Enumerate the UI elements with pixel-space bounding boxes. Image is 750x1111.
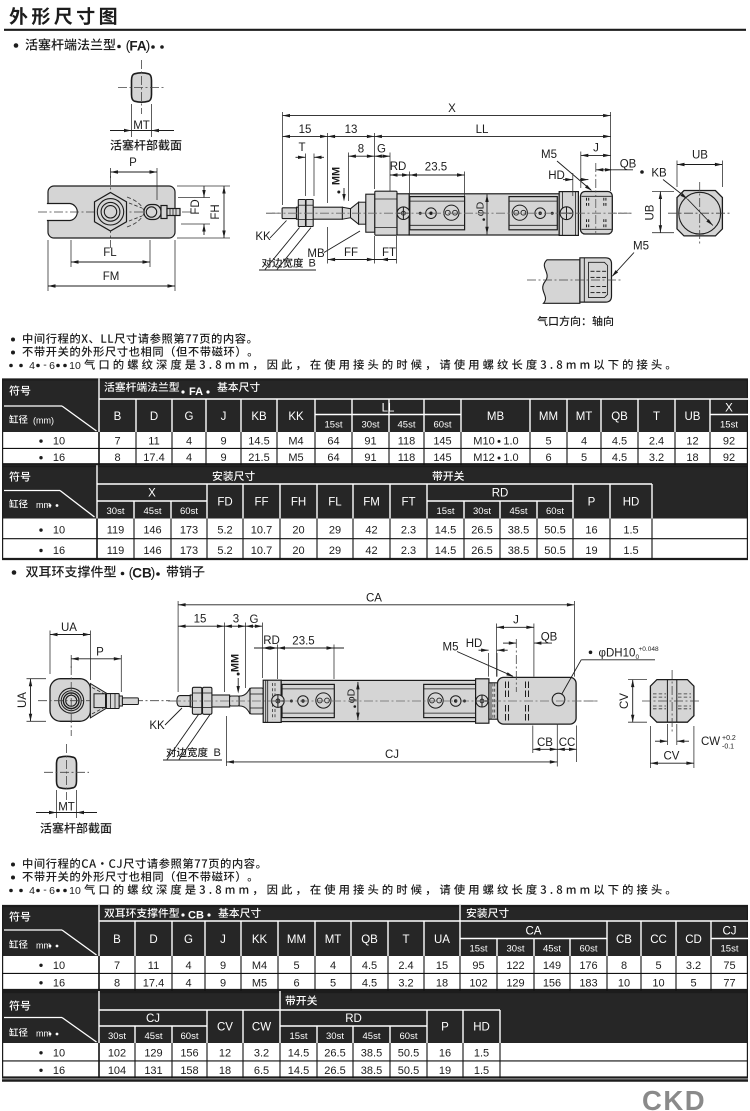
svg-text:CC: CC	[559, 737, 576, 749]
svg-text:10: 10	[69, 360, 81, 372]
svg-text:15st: 15st	[720, 420, 738, 431]
svg-text:64: 64	[327, 452, 339, 464]
svg-text:26.5: 26.5	[324, 1047, 345, 1059]
svg-text:FF: FF	[254, 497, 268, 509]
svg-text:KK: KK	[288, 411, 304, 423]
svg-text:RD: RD	[390, 161, 407, 173]
svg-text:T: T	[653, 411, 660, 423]
svg-text:60st: 60st	[580, 944, 598, 955]
svg-text:MM: MM	[331, 167, 343, 185]
svg-text:5: 5	[655, 960, 661, 972]
svg-text:176: 176	[579, 960, 597, 972]
svg-text:92: 92	[723, 436, 735, 448]
svg-text:11: 11	[148, 436, 159, 448]
svg-text:5: 5	[293, 960, 299, 972]
svg-text:145: 145	[433, 436, 451, 448]
svg-text:4: 4	[581, 436, 587, 448]
svg-text:UB: UB	[692, 150, 708, 162]
svg-text:3: 3	[233, 614, 239, 626]
svg-text:(mm): (mm)	[33, 416, 54, 426]
svg-text:64: 64	[327, 436, 339, 448]
svg-text:119: 119	[107, 525, 125, 537]
svg-text:6: 6	[293, 977, 299, 989]
svg-text:HD: HD	[623, 497, 640, 509]
svg-text:B: B	[113, 934, 121, 946]
svg-text:19: 19	[439, 1065, 451, 1077]
svg-text:30st: 30st	[507, 944, 525, 955]
svg-text:77: 77	[723, 977, 735, 989]
svg-text:D: D	[149, 934, 157, 946]
svg-text:4: 4	[186, 436, 192, 448]
svg-text:2.4: 2.4	[398, 960, 413, 972]
svg-text:91: 91	[364, 436, 376, 448]
svg-text:φD: φD	[475, 201, 487, 216]
svg-text:50.5: 50.5	[544, 525, 565, 537]
svg-text:-: -	[43, 359, 47, 371]
svg-text:30st: 30st	[107, 506, 125, 517]
svg-text:M4: M4	[252, 960, 267, 972]
svg-text:M5: M5	[288, 452, 303, 464]
svg-text:3.2: 3.2	[649, 452, 664, 464]
svg-text:2.3: 2.3	[401, 545, 416, 557]
svg-text:J: J	[513, 615, 519, 627]
svg-text:45st: 45st	[144, 506, 162, 517]
svg-text:1.5: 1.5	[474, 1065, 489, 1077]
svg-text:38.5: 38.5	[361, 1047, 382, 1059]
svg-text:60st: 60st	[181, 1031, 199, 1042]
svg-text:UA: UA	[61, 622, 77, 634]
svg-text:45st: 45st	[398, 420, 416, 431]
svg-text:15st: 15st	[437, 506, 455, 517]
svg-text:16: 16	[53, 452, 65, 464]
svg-text:15: 15	[299, 124, 312, 136]
svg-text:30st: 30st	[362, 420, 380, 431]
svg-text:FH: FH	[210, 204, 222, 219]
svg-text:QB: QB	[361, 934, 378, 946]
svg-text:26.5: 26.5	[471, 545, 492, 557]
svg-text:16: 16	[53, 977, 65, 989]
svg-text:15: 15	[436, 960, 448, 972]
svg-text:18: 18	[436, 977, 448, 989]
svg-text:CB: CB	[132, 566, 152, 581]
svg-text:QB: QB	[541, 632, 558, 644]
svg-text:P: P	[588, 497, 596, 509]
svg-text:15st: 15st	[721, 944, 739, 955]
svg-text:131: 131	[144, 1065, 162, 1077]
svg-text:16: 16	[585, 525, 597, 537]
svg-text:G: G	[184, 934, 193, 946]
svg-text:M5: M5	[633, 241, 649, 253]
svg-text:102: 102	[469, 977, 487, 989]
svg-text:FF: FF	[344, 247, 358, 259]
svg-text:15st: 15st	[290, 1031, 308, 1042]
svg-text:CB: CB	[188, 909, 204, 921]
svg-text:18: 18	[686, 452, 698, 464]
svg-text:4: 4	[185, 960, 191, 972]
svg-text:5.2: 5.2	[217, 545, 232, 557]
svg-text:CKD: CKD	[642, 1085, 706, 1111]
svg-text:G: G	[377, 144, 386, 156]
svg-text:CB: CB	[616, 934, 632, 946]
svg-text:4: 4	[330, 960, 336, 972]
svg-text:CA: CA	[526, 926, 542, 938]
svg-text:50.5: 50.5	[398, 1047, 419, 1059]
svg-text:CA: CA	[366, 593, 382, 605]
svg-text:7: 7	[114, 960, 120, 972]
svg-text:26.5: 26.5	[471, 525, 492, 537]
svg-text:3.2: 3.2	[686, 960, 701, 972]
svg-text:FM: FM	[103, 271, 120, 283]
svg-text:8: 8	[114, 977, 120, 989]
svg-text:B: B	[114, 411, 122, 423]
svg-text:17.4: 17.4	[143, 977, 164, 989]
svg-text:20: 20	[292, 525, 304, 537]
svg-text:23.5: 23.5	[425, 162, 447, 174]
svg-text:1.5: 1.5	[623, 525, 638, 537]
svg-text:HD: HD	[473, 1022, 490, 1034]
svg-text:30st: 30st	[326, 1031, 344, 1042]
svg-text:M5: M5	[443, 642, 459, 654]
svg-text:D: D	[150, 411, 158, 423]
svg-text:KK: KK	[252, 934, 268, 946]
svg-text:10: 10	[53, 525, 65, 537]
svg-text:173: 173	[180, 545, 198, 557]
svg-text:P: P	[441, 1022, 449, 1034]
svg-text:4.5: 4.5	[362, 977, 377, 989]
svg-text:B: B	[309, 258, 316, 270]
svg-text:4.5: 4.5	[612, 436, 627, 448]
svg-text:P: P	[96, 647, 104, 659]
svg-text:G: G	[185, 411, 194, 423]
svg-text:4: 4	[185, 977, 191, 989]
svg-text:45st: 45st	[510, 506, 528, 517]
svg-text:173: 173	[180, 525, 198, 537]
svg-text:4.5: 4.5	[362, 960, 377, 972]
svg-text:122: 122	[506, 960, 524, 972]
svg-text:M10: M10	[473, 436, 494, 448]
svg-text:UB: UB	[685, 411, 701, 423]
svg-text:146: 146	[143, 525, 161, 537]
svg-text:30st: 30st	[108, 1031, 126, 1042]
svg-text:42: 42	[365, 545, 377, 557]
svg-text:156: 156	[543, 977, 561, 989]
svg-text:30st: 30st	[473, 506, 491, 517]
svg-text:19: 19	[585, 545, 597, 557]
svg-text:): )	[146, 37, 151, 53]
svg-text:129: 129	[144, 1047, 162, 1059]
svg-text:21.5: 21.5	[248, 452, 269, 464]
svg-text:CJ: CJ	[722, 926, 736, 938]
svg-text:-: -	[43, 884, 47, 896]
svg-text:14.5: 14.5	[288, 1065, 309, 1077]
svg-text:1.5: 1.5	[474, 1047, 489, 1059]
svg-text:16: 16	[53, 1065, 65, 1077]
svg-text:FT: FT	[401, 497, 415, 509]
svg-text:9: 9	[220, 436, 226, 448]
svg-text:CV: CV	[619, 693, 631, 709]
svg-text:10: 10	[53, 960, 65, 972]
svg-text:T: T	[298, 142, 305, 154]
svg-text:G: G	[250, 614, 259, 626]
svg-text:60st: 60st	[180, 506, 198, 517]
svg-text:J: J	[220, 934, 226, 946]
svg-text:183: 183	[579, 977, 597, 989]
svg-text:7: 7	[114, 436, 120, 448]
svg-text:FL: FL	[328, 497, 342, 509]
svg-text:18: 18	[219, 1065, 231, 1077]
svg-text:FM: FM	[363, 497, 380, 509]
svg-text:RD: RD	[345, 1013, 362, 1025]
svg-text:60st: 60st	[400, 1031, 418, 1042]
svg-text:38.5: 38.5	[361, 1065, 382, 1077]
svg-text:X: X	[725, 403, 733, 415]
svg-text:119: 119	[107, 545, 125, 557]
svg-text:LL: LL	[476, 124, 489, 136]
svg-text:RD: RD	[263, 635, 280, 647]
svg-text:UB: UB	[645, 204, 657, 220]
svg-text:14.5: 14.5	[248, 436, 269, 448]
svg-text:MM: MM	[539, 411, 558, 423]
svg-text:158: 158	[180, 1065, 198, 1077]
svg-text:10.7: 10.7	[251, 525, 272, 537]
svg-text:+0.048: +0.048	[639, 646, 659, 653]
svg-text:11: 11	[148, 960, 159, 972]
svg-text:1.0: 1.0	[503, 452, 518, 464]
svg-text:KB: KB	[251, 411, 267, 423]
svg-text:26.5: 26.5	[324, 1065, 345, 1077]
svg-text:6.5: 6.5	[254, 1065, 269, 1077]
svg-text:T: T	[402, 934, 409, 946]
svg-text:60st: 60st	[546, 506, 564, 517]
svg-text:FL: FL	[103, 247, 117, 259]
svg-text:10: 10	[69, 885, 81, 897]
svg-text:104: 104	[108, 1065, 126, 1077]
svg-text:MT: MT	[325, 934, 342, 946]
svg-text:118: 118	[398, 436, 416, 448]
svg-text:FA: FA	[129, 39, 147, 54]
svg-text:LL: LL	[382, 403, 395, 415]
svg-text:23.5: 23.5	[292, 636, 314, 648]
svg-text:2.3: 2.3	[401, 525, 416, 537]
svg-text:KB: KB	[651, 168, 667, 180]
svg-text:-0.1: -0.1	[722, 744, 734, 751]
svg-text:10: 10	[618, 977, 630, 989]
svg-text:10.7: 10.7	[251, 545, 272, 557]
svg-text:92: 92	[723, 452, 735, 464]
svg-text:1.5: 1.5	[623, 545, 638, 557]
svg-text:118: 118	[398, 452, 416, 464]
svg-text:45st: 45st	[363, 1031, 381, 1042]
svg-text:14.5: 14.5	[288, 1047, 309, 1059]
svg-text:CD: CD	[685, 934, 702, 946]
svg-text:J: J	[221, 411, 227, 423]
svg-text:FT: FT	[382, 247, 396, 259]
svg-text:146: 146	[143, 545, 161, 557]
svg-text:149: 149	[543, 960, 561, 972]
svg-text:M5: M5	[541, 149, 557, 161]
svg-text:3.2: 3.2	[254, 1047, 269, 1059]
svg-text:6: 6	[49, 360, 55, 372]
svg-text:129: 129	[506, 977, 524, 989]
svg-text:HD: HD	[548, 170, 565, 182]
svg-text:QB: QB	[620, 159, 637, 171]
svg-text:4: 4	[186, 452, 192, 464]
svg-text:CV: CV	[664, 751, 680, 763]
svg-text:CW: CW	[252, 1022, 271, 1034]
svg-text:CB: CB	[537, 737, 553, 749]
svg-text:45st: 45st	[543, 944, 561, 955]
svg-text:5: 5	[545, 436, 551, 448]
svg-text:FH: FH	[291, 497, 306, 509]
svg-text:1.0: 1.0	[503, 436, 518, 448]
svg-text:MT: MT	[133, 120, 150, 132]
svg-text:X: X	[448, 103, 456, 115]
svg-text:+0.2: +0.2	[722, 735, 736, 742]
svg-text:2.4: 2.4	[649, 436, 664, 448]
svg-text:MB: MB	[487, 411, 505, 423]
svg-text:CW: CW	[701, 736, 720, 748]
svg-text:MM: MM	[287, 934, 306, 946]
svg-text:5: 5	[330, 977, 336, 989]
svg-text:M5: M5	[252, 977, 267, 989]
svg-text:14.5: 14.5	[435, 525, 456, 537]
svg-text:MT: MT	[576, 411, 593, 423]
svg-text:8: 8	[114, 452, 120, 464]
svg-text:9: 9	[220, 977, 226, 989]
svg-text:CC: CC	[650, 934, 667, 946]
svg-text:6: 6	[49, 885, 55, 897]
svg-text:4: 4	[29, 360, 35, 372]
svg-text:75: 75	[723, 960, 735, 972]
svg-text:M4: M4	[288, 436, 303, 448]
svg-text:HD: HD	[466, 638, 483, 650]
svg-text:95: 95	[472, 960, 484, 972]
svg-text:8: 8	[358, 144, 364, 156]
svg-text:14.5: 14.5	[435, 545, 456, 557]
svg-text:12: 12	[686, 436, 698, 448]
svg-text:45st: 45st	[145, 1031, 163, 1042]
svg-text:FD: FD	[217, 497, 232, 509]
svg-text:9: 9	[220, 960, 226, 972]
svg-text:MT: MT	[58, 802, 75, 814]
svg-text:10: 10	[53, 1047, 65, 1059]
svg-text:50.5: 50.5	[398, 1065, 419, 1077]
svg-text:29: 29	[329, 545, 341, 557]
svg-text:M12: M12	[473, 452, 494, 464]
svg-text:16: 16	[53, 545, 65, 557]
svg-text:38.5: 38.5	[508, 525, 529, 537]
svg-text:4.5: 4.5	[612, 452, 627, 464]
svg-text:FA: FA	[189, 386, 203, 398]
svg-text:17.4: 17.4	[143, 452, 164, 464]
svg-text:15st: 15st	[470, 944, 488, 955]
svg-text:5.2: 5.2	[217, 525, 232, 537]
svg-text:5: 5	[690, 977, 696, 989]
svg-text:RD: RD	[492, 488, 509, 500]
svg-text:50.5: 50.5	[544, 545, 565, 557]
svg-text:5: 5	[581, 452, 587, 464]
svg-text:QB: QB	[611, 411, 628, 423]
svg-text:60st: 60st	[434, 420, 452, 431]
svg-text:6: 6	[545, 452, 551, 464]
svg-text:X: X	[148, 488, 156, 500]
svg-text:13: 13	[345, 124, 358, 136]
svg-text:29: 29	[329, 525, 341, 537]
svg-text:UA: UA	[434, 934, 450, 946]
svg-text:J: J	[593, 143, 599, 155]
svg-text:CJ: CJ	[385, 749, 399, 761]
svg-text:15: 15	[194, 614, 207, 626]
svg-text:38.5: 38.5	[508, 545, 529, 557]
svg-text:KK: KK	[255, 231, 271, 243]
svg-text:KK: KK	[149, 720, 165, 732]
svg-text:B: B	[214, 747, 221, 759]
svg-text:φDH10: φDH10	[599, 648, 636, 660]
svg-text:CJ: CJ	[146, 1013, 160, 1025]
svg-text:42: 42	[365, 525, 377, 537]
svg-text:MM: MM	[230, 654, 242, 672]
svg-text:156: 156	[180, 1047, 198, 1059]
svg-text:145: 145	[433, 452, 451, 464]
svg-text:FD: FD	[190, 199, 202, 214]
svg-text:10: 10	[652, 977, 664, 989]
svg-text:3.2: 3.2	[398, 977, 413, 989]
svg-text:4: 4	[29, 885, 35, 897]
svg-text:UA: UA	[17, 692, 29, 708]
svg-text:102: 102	[108, 1047, 126, 1059]
svg-text:91: 91	[364, 452, 376, 464]
svg-text:20: 20	[292, 545, 304, 557]
svg-text:P: P	[129, 157, 137, 169]
svg-text:15st: 15st	[325, 420, 343, 431]
svg-text:9: 9	[220, 452, 226, 464]
svg-text:10: 10	[53, 436, 65, 448]
svg-text:16: 16	[439, 1047, 451, 1059]
svg-text:12: 12	[219, 1047, 231, 1059]
svg-text:CV: CV	[217, 1022, 233, 1034]
svg-text:): )	[151, 564, 156, 580]
svg-text:8: 8	[621, 960, 627, 972]
